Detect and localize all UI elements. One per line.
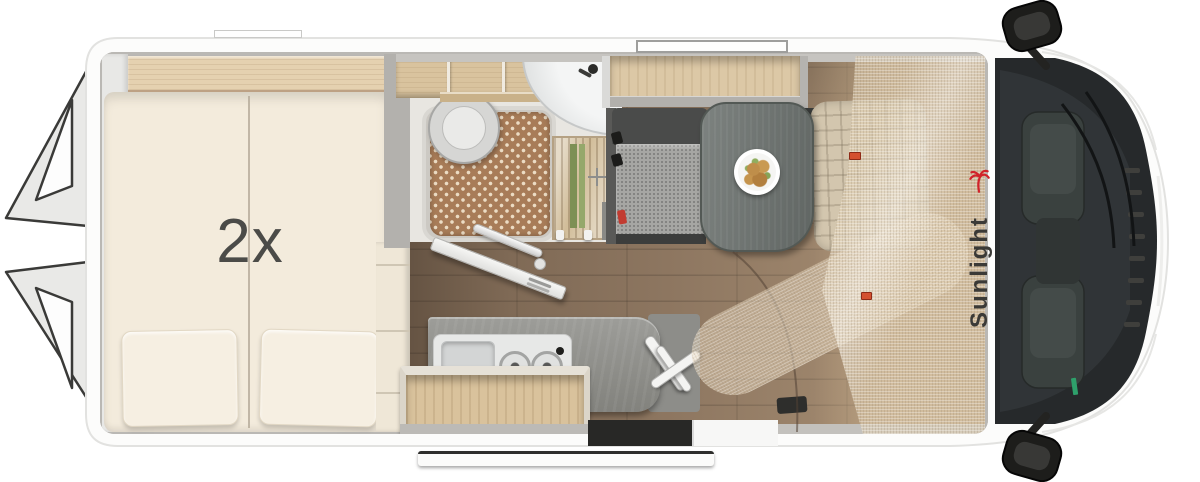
passenger-seat-cushion — [1030, 288, 1076, 358]
floorplan-canvas: 2x — [0, 0, 1200, 482]
cab-layer — [0, 0, 1200, 482]
center-console — [1036, 218, 1080, 284]
side-mirror-top-icon — [999, 0, 1065, 66]
entry-step-bar — [418, 451, 714, 466]
driver-seat-cushion — [1030, 124, 1076, 194]
brand-logo: Sunlight — [966, 216, 994, 328]
sliding-door-opening — [692, 420, 778, 446]
sliding-door-track — [588, 420, 692, 446]
side-mirror-bottom-icon — [999, 416, 1065, 482]
dinette-window — [636, 40, 788, 53]
roof-vent-strip — [214, 30, 302, 38]
palm-tree-icon — [966, 168, 992, 194]
